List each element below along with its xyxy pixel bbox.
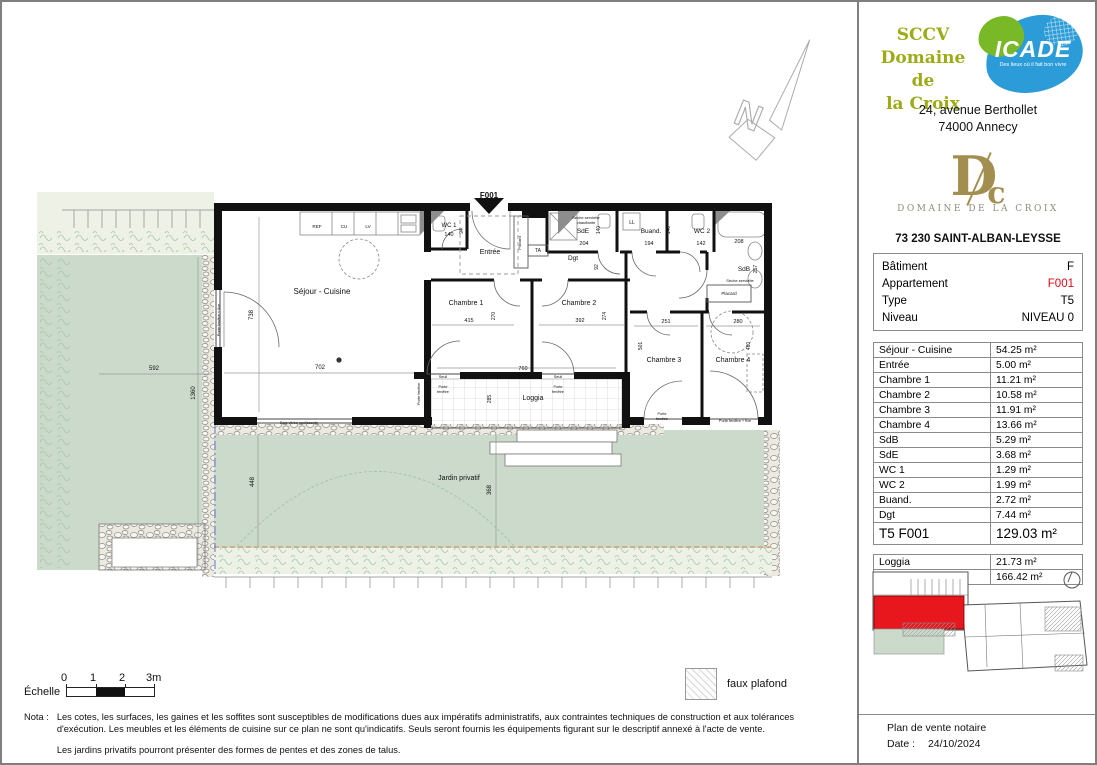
- address-line: 24, avenue Berthollet: [859, 102, 1097, 119]
- row-value: F001: [989, 275, 1074, 292]
- row-value: 10.58 m²: [991, 388, 1083, 403]
- row-value: NIVEAU 0: [989, 309, 1074, 326]
- dc-monogram: Dc: [950, 148, 1005, 204]
- plan-label: TA: [535, 248, 542, 254]
- areas-table: Séjour - Cuisine54.25 m²Entrée5.00 m²Cha…: [873, 342, 1083, 545]
- plan-label: 274: [602, 312, 608, 321]
- plan-label: chauffante: [577, 220, 596, 225]
- plan-label: 140: [596, 226, 602, 235]
- table-row: WC 11.29 m²: [874, 463, 1083, 478]
- plan-label: F001: [480, 191, 499, 200]
- row-value: 1.99 m²: [991, 478, 1083, 493]
- plan-label: 257: [753, 265, 759, 274]
- plan-label: Chambre 4: [716, 357, 751, 364]
- faux-plafond-label: faux plafond: [727, 678, 787, 690]
- sccv-line: SCCV: [867, 24, 979, 47]
- plan-label: 280: [733, 319, 742, 325]
- plan-label: Porte fenêtre + fixe: [719, 419, 751, 423]
- plan-label: Dgt: [568, 255, 578, 262]
- plan-label: Seuil: [554, 375, 563, 379]
- plan-label: Loggia: [522, 395, 543, 402]
- plan-label: Séjour - Cuisine: [294, 287, 351, 296]
- row-label: SdE: [874, 448, 991, 463]
- plan-label: 194: [644, 241, 653, 247]
- scale-tick: 3m: [146, 672, 161, 684]
- row-label: Dgt: [874, 508, 991, 523]
- row-label: WC 1: [874, 463, 991, 478]
- nota-block: Nota : Les cotes, les surfaces, les gain…: [24, 712, 844, 757]
- table-row: Buand.2.72 m²: [874, 493, 1083, 508]
- garden-bottom: [214, 424, 780, 588]
- plan-label: fenêtre: [437, 390, 449, 394]
- plan-label: fenêtre: [656, 417, 668, 421]
- side-footer: Plan de vente notaire Date : 24/10/2024: [859, 714, 1097, 750]
- plan-label: Seuil: [439, 375, 448, 379]
- plan-label: Porte: [657, 412, 666, 416]
- total-label: T5 F001: [874, 523, 991, 545]
- table-row: BâtimentF: [882, 258, 1074, 275]
- scale-tick: 0: [61, 672, 67, 684]
- row-value: F: [989, 258, 1074, 275]
- faux-plafond-swatch: [685, 668, 717, 700]
- icade-logo: ICADE Des lieux où il fait bon vivre: [979, 10, 1087, 100]
- apartment-info-table: BâtimentFAppartementF001TypeT5NiveauNIVE…: [873, 253, 1083, 331]
- plan-label: Porte: [553, 385, 562, 389]
- plan-label: 760: [518, 366, 527, 372]
- row-value: 5.29 m²: [991, 433, 1083, 448]
- nota-paragraph-2: Les jardins privatifs pourront présenter…: [57, 745, 844, 757]
- row-label: Chambre 4: [874, 418, 991, 433]
- plan-label: SdE: [577, 228, 590, 235]
- plan-label: 140: [444, 232, 453, 238]
- north-arrow-icon: [725, 26, 820, 165]
- plan-label: WC 1: [442, 223, 458, 229]
- date-label: Date :: [887, 738, 915, 750]
- scale-bar-graphic: [66, 687, 155, 697]
- table-row: Dgt7.44 m²: [874, 508, 1083, 523]
- row-value: 1.29 m²: [991, 463, 1083, 478]
- floorplan-area: F001NSéjour - Cuisine702738REFCULVWC 114…: [2, 2, 857, 763]
- plan-label: 285: [487, 395, 493, 404]
- plan-date: Date : 24/10/2024: [887, 738, 1097, 750]
- row-label: Chambre 2: [874, 388, 991, 403]
- plan-type: Plan de vente notaire: [887, 722, 1097, 734]
- plan-label: Jardin privatif: [438, 475, 480, 482]
- plan-label: 392: [575, 318, 584, 324]
- plan-label: Porte: [438, 385, 447, 389]
- date-value: 24/10/2024: [928, 738, 981, 750]
- plan-sheet-page: F001NSéjour - Cuisine702738REFCULVWC 114…: [0, 0, 1097, 765]
- floorplan-drawing: F001NSéjour - Cuisine702738REFCULVWC 114…: [2, 2, 857, 662]
- sccv-line: Domaine de: [867, 47, 979, 93]
- plan-label: 1360: [191, 386, 197, 400]
- scale-label: Échelle: [24, 686, 60, 698]
- plan-label: 204: [579, 241, 588, 247]
- plan-label: fenêtre: [552, 390, 564, 394]
- plan-label: 448: [250, 476, 256, 487]
- key-plan-compass-icon: [1064, 572, 1080, 588]
- plan-label: CU: [341, 224, 348, 229]
- domaine-de-la-croix-logo: Dc DOMAINE DE LA CROIX: [859, 148, 1097, 226]
- scale-bar: Échelle 0 1 2 3m: [24, 672, 204, 706]
- plan-label: 415: [464, 318, 473, 324]
- row-label: Appartement: [882, 275, 989, 292]
- row-label: Niveau: [882, 309, 989, 326]
- areas-total-row: T5 F001 129.03 m²: [874, 523, 1083, 545]
- table-row: TypeT5: [882, 292, 1074, 309]
- plan-label: 738: [249, 309, 255, 320]
- scale-tick: 2: [119, 672, 125, 684]
- row-label: WC 2: [874, 478, 991, 493]
- row-label: SdB: [874, 433, 991, 448]
- plan-label: Chambre 3: [647, 357, 682, 364]
- table-row: Chambre 210.58 m²: [874, 388, 1083, 403]
- key-plan: [865, 567, 1093, 689]
- plan-label: Placard: [721, 291, 737, 296]
- plan-label: 592: [149, 366, 160, 372]
- plan-label: 92: [594, 264, 600, 270]
- total-value: 129.03 m²: [991, 523, 1083, 545]
- table-row: WC 21.99 m²: [874, 478, 1083, 493]
- row-value: 5.00 m²: [991, 358, 1083, 373]
- plan-label: LL: [629, 220, 635, 226]
- row-label: Séjour - Cuisine: [874, 343, 991, 358]
- table-row: SdE3.68 m²: [874, 448, 1083, 463]
- plan-label: 270: [491, 312, 497, 321]
- row-value: 11.91 m²: [991, 403, 1083, 418]
- nota-paragraph-1: Les cotes, les surfaces, les gaines et l…: [57, 712, 844, 735]
- plan-label: 251: [661, 319, 670, 325]
- address-line: 74000 Annecy: [859, 119, 1097, 136]
- plan-label: 94: [459, 228, 465, 234]
- plan-label: WC 2: [694, 228, 711, 235]
- row-label: Entrée: [874, 358, 991, 373]
- table-row: Chambre 413.66 m²: [874, 418, 1083, 433]
- table-row: AppartementF001: [882, 275, 1074, 292]
- row-label: Chambre 1: [874, 373, 991, 388]
- table-row: Séjour - Cuisine54.25 m²: [874, 343, 1083, 358]
- plan-label: REF: [312, 224, 321, 229]
- row-label: Bâtiment: [882, 258, 989, 275]
- row-value: 7.44 m²: [991, 508, 1083, 523]
- loggia: [431, 379, 630, 428]
- table-row: NiveauNIVEAU 0: [882, 309, 1074, 326]
- row-label: Buand.: [874, 493, 991, 508]
- legend-faux-plafond: faux plafond: [685, 668, 787, 700]
- plan-label: Sèche serviette: [726, 278, 754, 283]
- table-row: Chambre 311.91 m²: [874, 403, 1083, 418]
- garden-left: [37, 192, 214, 577]
- table-row: Chambre 111.21 m²: [874, 373, 1083, 388]
- plan-label: 368: [487, 484, 493, 495]
- row-label: Type: [882, 292, 989, 309]
- plan-label: Porte fenêtre + fixe: [217, 304, 221, 336]
- row-value: 11.21 m²: [991, 373, 1083, 388]
- row-label: Chambre 3: [874, 403, 991, 418]
- table-row: SdB5.29 m²: [874, 433, 1083, 448]
- plan-label: Chambre 2: [562, 300, 597, 307]
- row-value: 13.66 m²: [991, 418, 1083, 433]
- side-panel: SCCV Domaine de la Croix ICADE Des lieux…: [857, 2, 1097, 763]
- plan-label: 702: [315, 365, 326, 371]
- plan-label: 140: [666, 226, 672, 235]
- plan-label: Entrée: [480, 249, 501, 256]
- plan-label: Porte fenêtre: [417, 383, 421, 405]
- plan-label: Buand.: [641, 228, 662, 235]
- row-value: 2.72 m²: [991, 493, 1083, 508]
- plan-label: Chambre 1: [449, 300, 484, 307]
- plan-label: 208: [734, 239, 743, 245]
- entry-arrow: [474, 198, 504, 214]
- plan-label: 501: [638, 342, 644, 351]
- scale-tick: 1: [90, 672, 96, 684]
- icade-logo-name: ICADE: [979, 36, 1087, 63]
- plan-label: Placard: [517, 236, 522, 250]
- brand-city: 73 230 SAINT-ALBAN-LEYSSE: [859, 233, 1097, 245]
- plan-label: 142: [696, 241, 705, 247]
- nota-label: Nota :: [24, 712, 49, 757]
- row-value: 3.68 m²: [991, 448, 1083, 463]
- plan-label: Baie vitrée coulissante: [280, 421, 318, 425]
- row-value: T5: [989, 292, 1074, 309]
- plan-label: 480: [746, 342, 752, 351]
- table-row: Entrée5.00 m²: [874, 358, 1083, 373]
- address: 24, avenue Berthollet 74000 Annecy: [859, 102, 1097, 136]
- icade-logo-tagline: Des lieux où il fait bon vivre: [979, 62, 1087, 68]
- plan-label: SdB: [738, 266, 750, 273]
- row-value: 54.25 m²: [991, 343, 1083, 358]
